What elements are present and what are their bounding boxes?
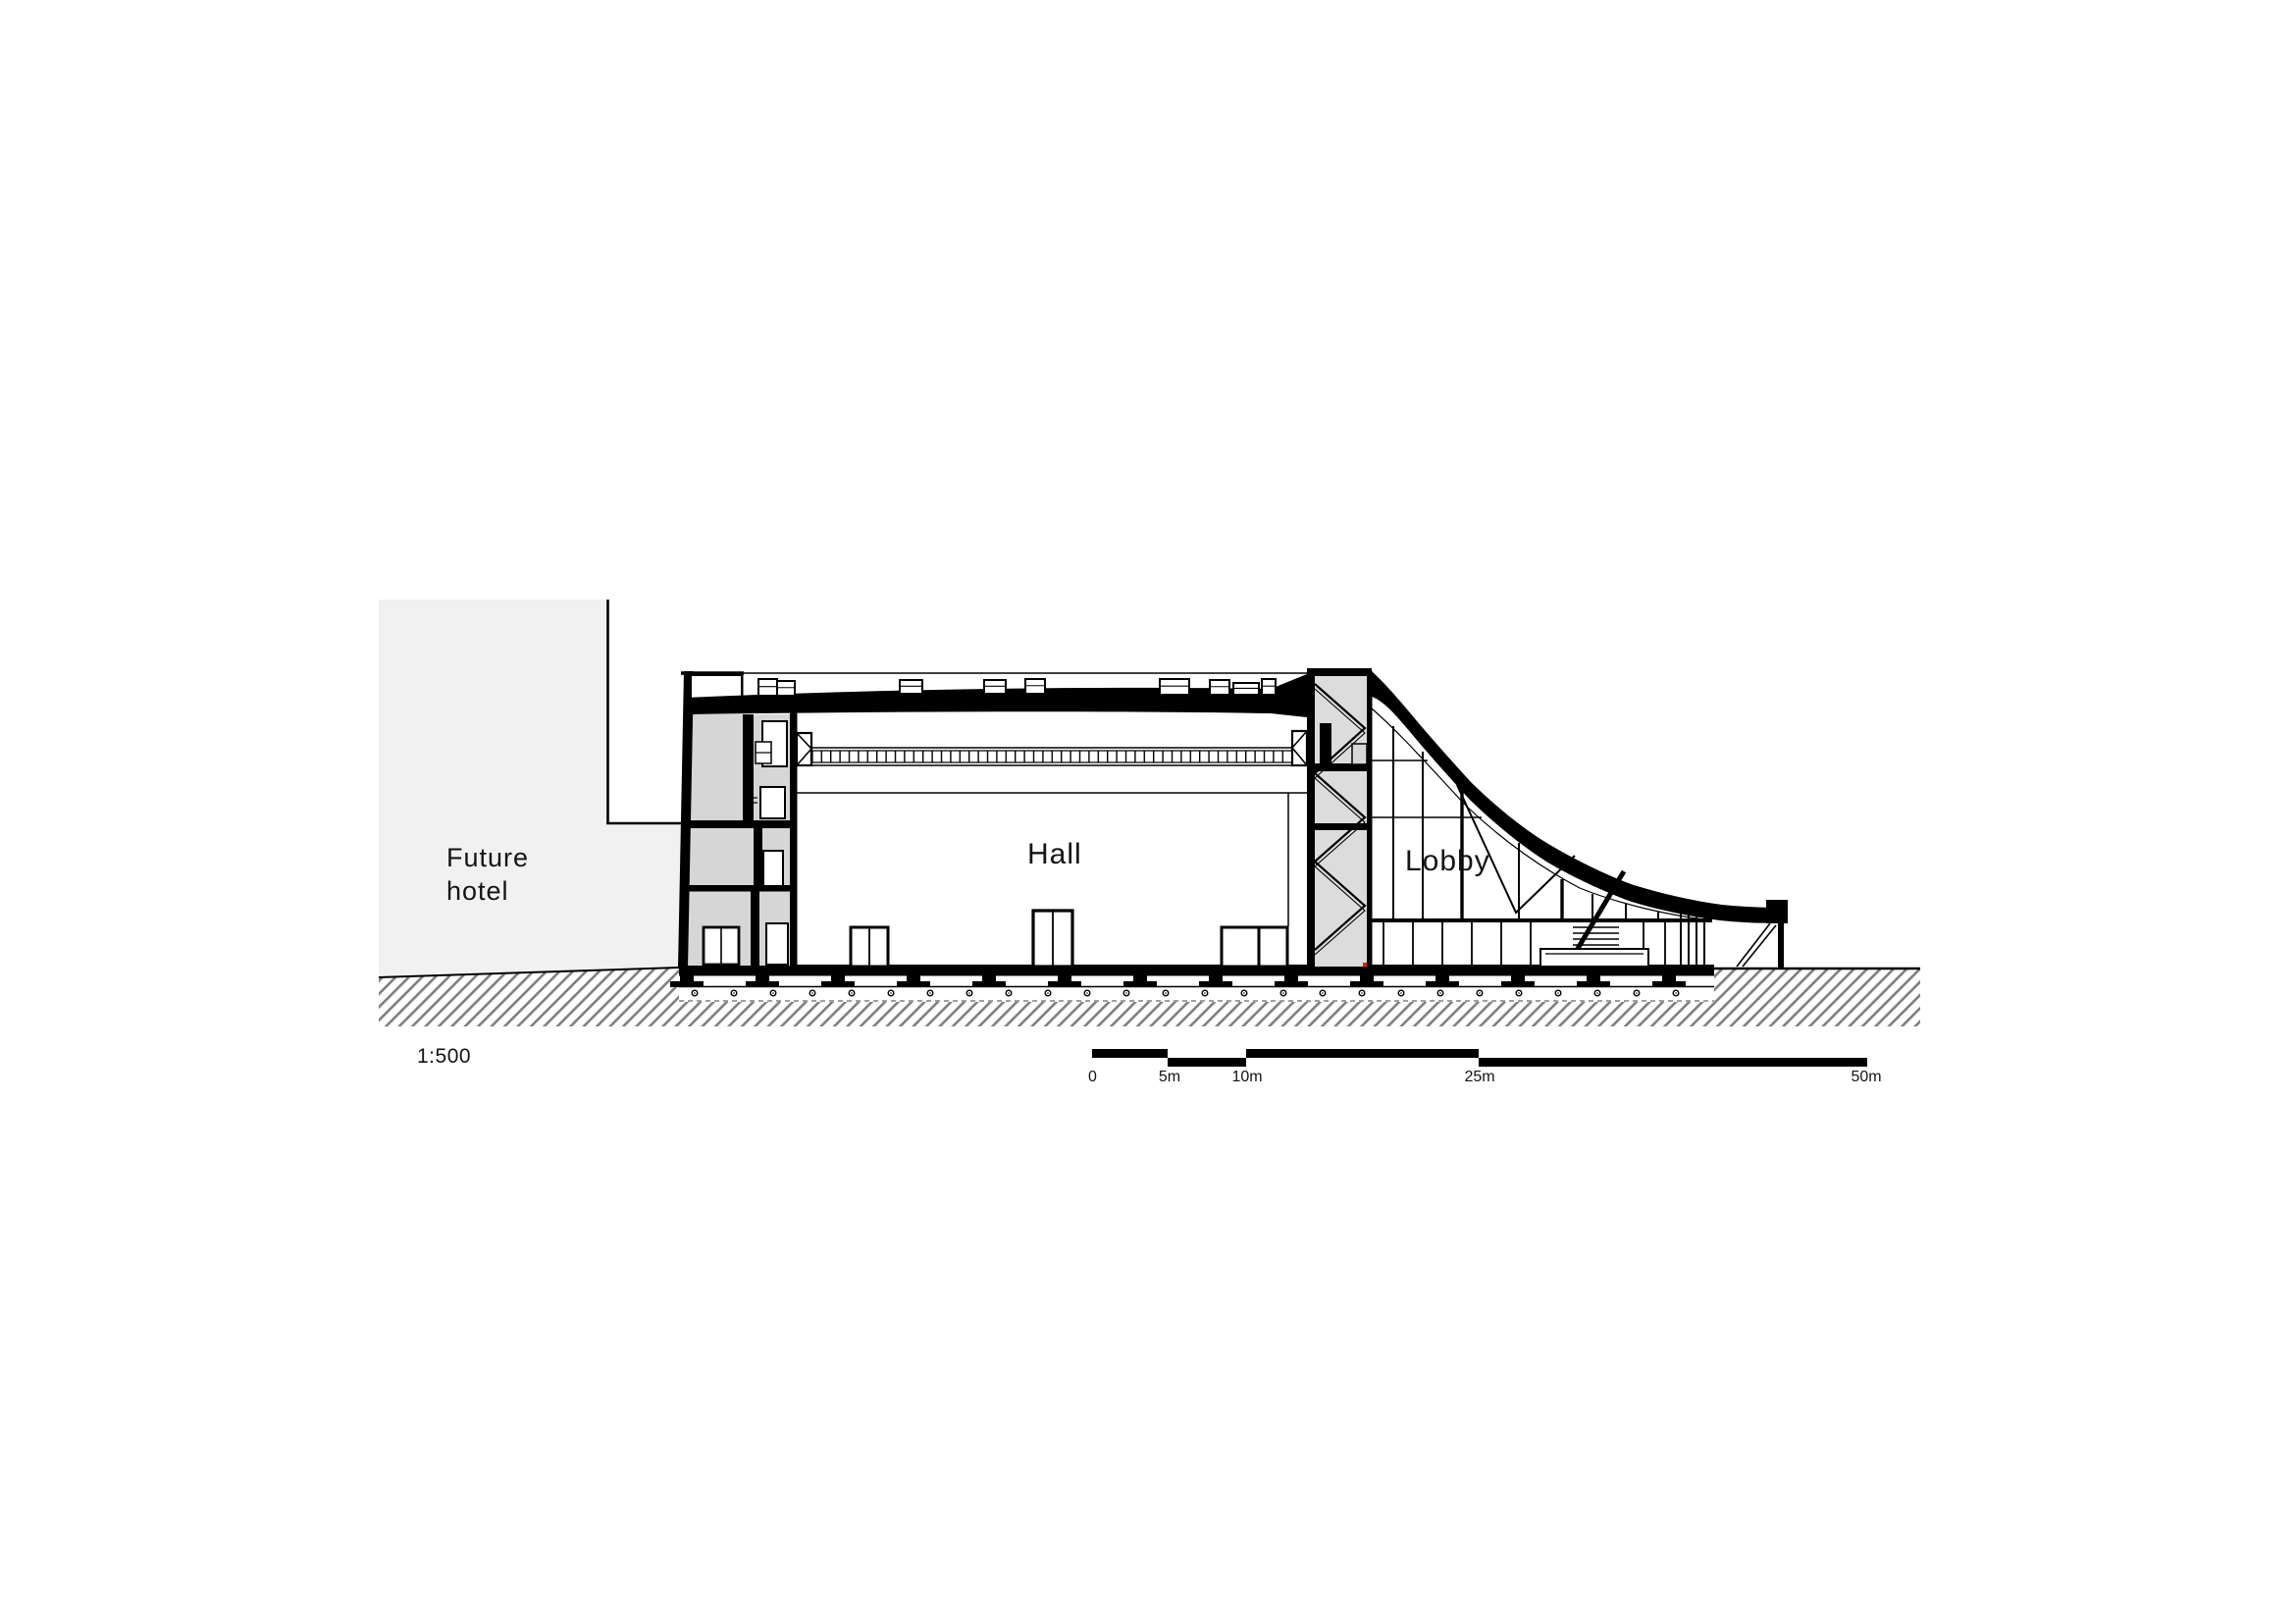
end-post xyxy=(1778,922,1784,969)
earth-hatch xyxy=(379,968,1920,1026)
stair-plinth xyxy=(1540,949,1648,967)
scale-bar-segment xyxy=(1168,1058,1246,1067)
future-hotel-block: Future hotel xyxy=(379,600,685,977)
truss-bracket-right xyxy=(1292,731,1307,765)
future-hotel-massing xyxy=(379,600,684,977)
hall-label: Hall xyxy=(1027,838,1082,870)
foundation-piers xyxy=(670,975,1686,987)
scale-bar-segment xyxy=(1246,1049,1479,1058)
ground-hatch xyxy=(379,968,1920,1026)
scale-tick-5m: 5m xyxy=(1159,1069,1180,1085)
raking-strut xyxy=(1737,923,1770,967)
tower-right-wall xyxy=(1367,671,1373,967)
curved-roof xyxy=(1372,671,1784,923)
truss-bracket-left xyxy=(797,733,811,765)
roof-penthouse xyxy=(691,675,742,699)
architectural-section-drawing: Future hotel xyxy=(0,0,2296,1624)
stage-tower xyxy=(1307,668,1373,969)
scale-ratio: 1:500 xyxy=(417,1045,471,1068)
drawing-sheet: Future hotel xyxy=(0,0,2296,1624)
scale-tick-50m: 50m xyxy=(1851,1069,1881,1085)
scale-tick-10m: 10m xyxy=(1231,1069,1262,1085)
hall-door-wide xyxy=(1222,927,1287,967)
roof xyxy=(685,673,1307,717)
backstage-tower xyxy=(678,671,798,969)
door xyxy=(760,787,785,818)
door xyxy=(766,923,788,965)
scale-bar: 0 5m 10m 25m 50m xyxy=(1088,1049,1882,1085)
roof-end-cap xyxy=(1766,900,1788,923)
hall: Hall xyxy=(797,731,1307,967)
lobby: Lobby xyxy=(1363,671,1788,969)
catwalk-truss xyxy=(797,731,1307,765)
pile-row xyxy=(692,990,1679,996)
tower-left-wall xyxy=(1307,669,1315,969)
future-hotel-label: Future xyxy=(446,843,529,872)
door xyxy=(763,851,783,886)
scale-tick-25m: 25m xyxy=(1464,1069,1494,1085)
scale-bar-segment xyxy=(1092,1049,1168,1058)
future-hotel-label-line2: hotel xyxy=(446,876,509,906)
scale-tick-0: 0 xyxy=(1088,1069,1097,1085)
lobby-label: Lobby xyxy=(1405,845,1490,877)
lobby-sill-rail xyxy=(1372,918,1712,922)
scale-ratio-label: 1:500 xyxy=(417,1045,471,1068)
scale-bar-segment xyxy=(1479,1058,1867,1067)
foundation xyxy=(670,965,1714,1001)
red-marker-dot xyxy=(1363,963,1368,968)
